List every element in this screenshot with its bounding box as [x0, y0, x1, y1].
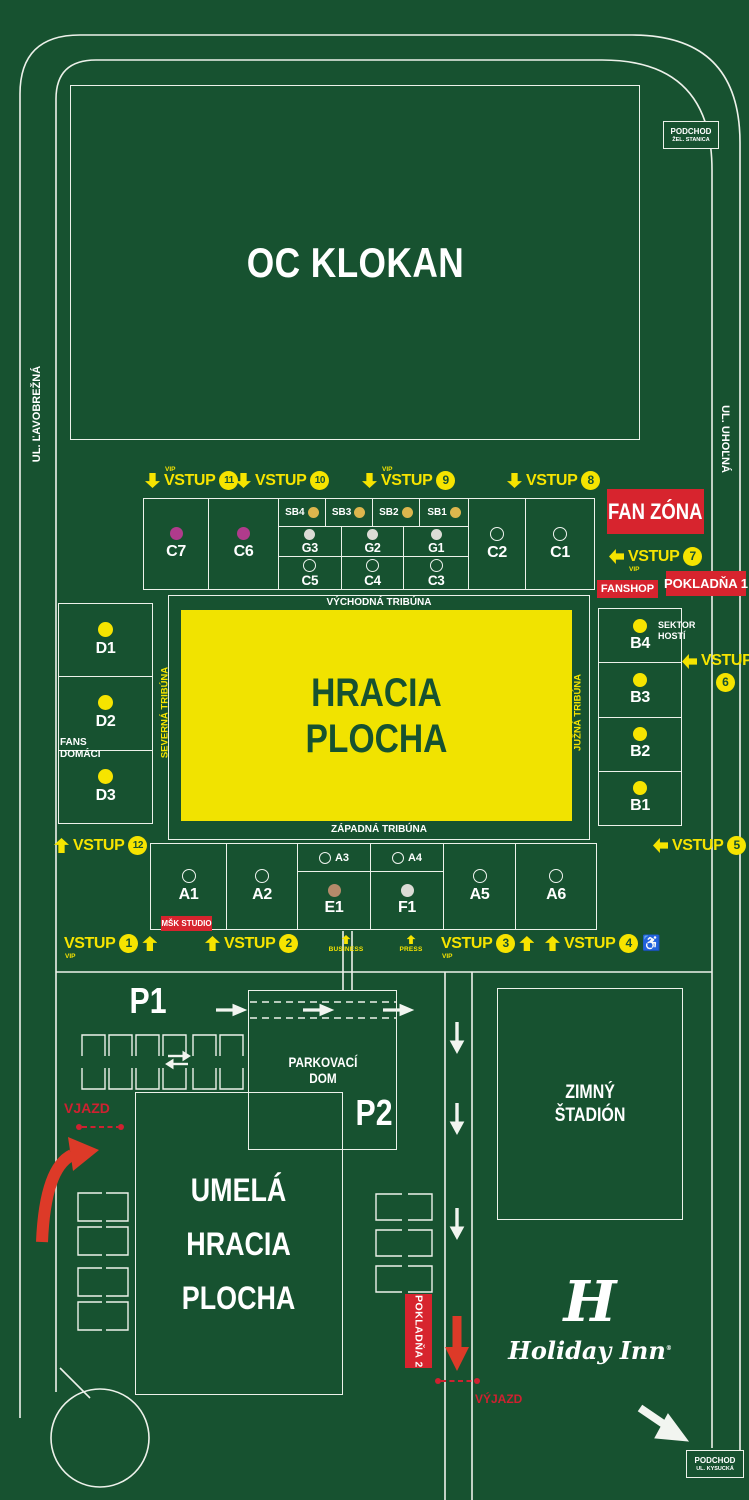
- entrance-label: VSTUP: [224, 935, 275, 952]
- sector-label: A5: [470, 886, 490, 904]
- vip-label: VIP: [65, 953, 75, 960]
- sector-dot-a6: [549, 869, 563, 883]
- east-mid-block: SB4 SB3 SB2 SB1 G3 C5 G2 C4 G1 C3: [279, 499, 469, 589]
- west-stand: A1 A2 A3 A4 E1 F1 A5 A6: [150, 843, 597, 930]
- down-arrow-icon: [451, 1041, 464, 1053]
- entrance-5: VSTUP 5: [653, 836, 746, 855]
- sector-dot-b1: [633, 781, 647, 795]
- west-mid-block: A3 A4 E1 F1: [298, 844, 444, 929]
- ice-stadium: ZIMNÝŠTADIÓN: [497, 988, 683, 1220]
- sign-title: PODCHOD: [671, 127, 712, 136]
- down-arrow-icon: [451, 1227, 464, 1239]
- entrance-1: VIPVSTUP 1: [64, 934, 157, 953]
- right-arrow-icon: [233, 1005, 246, 1016]
- sector-a6: A6: [516, 844, 596, 929]
- entrance-label: VSTUP: [526, 472, 577, 489]
- vip-label: VIP: [382, 466, 392, 473]
- entrance-number: 8: [581, 471, 600, 490]
- down-arrow-icon: [451, 1122, 464, 1134]
- sector-label: SB3: [332, 507, 351, 518]
- left-arrow-icon: [653, 838, 668, 853]
- holiday-inn-monogram: H: [505, 1272, 675, 1332]
- sector-c5: C5: [279, 557, 341, 589]
- street-label-right: UL. UHOĽNÁ: [719, 384, 731, 494]
- building-label: PARKOVACÍDOM: [288, 1054, 357, 1086]
- entrance-10: VSTUP 10: [236, 471, 329, 490]
- sector-a5: A5: [444, 844, 516, 929]
- building-label: UMELÁHRACIAPLOCHA: [182, 1163, 295, 1325]
- sector-dot-sb2: [402, 507, 413, 518]
- left-arrow-icon: [682, 654, 697, 669]
- sector-c1: C1: [526, 499, 594, 589]
- parking-p2-label: P2: [352, 1092, 396, 1134]
- building-label: OC KLOKAN: [246, 239, 463, 287]
- entrance-label: PRESS: [399, 946, 422, 953]
- down-arrow-icon: [362, 473, 377, 488]
- sector-a4: A4: [371, 844, 443, 871]
- up-arrow-icon: [142, 936, 157, 951]
- vip-label: VIP: [165, 466, 175, 473]
- sign-subtitle: UL. KYSUCKÁ: [696, 1466, 734, 1472]
- two-way-arrow-icon: [166, 1060, 173, 1069]
- right-arrow-icon: [400, 1005, 413, 1016]
- sector-label: A1: [179, 886, 199, 904]
- sector-label: B4: [630, 635, 650, 653]
- sector-b1: B1: [599, 771, 681, 825]
- underpass-sign-station: PODCHOD ŽEL. STANICA: [663, 121, 719, 149]
- entrance-number: 12: [128, 836, 147, 855]
- holiday-inn-logo: H Holiday Inn®: [505, 1272, 675, 1365]
- sector-label: B1: [630, 797, 650, 815]
- sector-dot-d3: [98, 769, 113, 784]
- sector-g2: G2: [342, 527, 404, 557]
- sector-a3: A3: [298, 844, 371, 871]
- sector-dot-e1: [328, 884, 341, 897]
- entrance-label: VSTUP: [64, 935, 115, 952]
- sector-sb4: SB4: [279, 499, 326, 526]
- sector-e1: E1: [298, 872, 371, 929]
- entrance-label: VSTUP: [628, 548, 679, 565]
- gc-col-2: G2 C4: [342, 527, 405, 589]
- sector-dot-c5: [303, 559, 316, 572]
- sector-dot-c1: [553, 527, 567, 541]
- up-arrow-icon: [342, 935, 351, 944]
- exit-arrow-head: [445, 1347, 469, 1371]
- entrance-6: VSTUP 6: [682, 652, 749, 692]
- sector-label: SB2: [379, 507, 398, 518]
- down-arrow-icon: [507, 473, 522, 488]
- up-arrow-icon: [519, 936, 534, 951]
- entrance-12: VSTUP 12: [54, 836, 147, 855]
- stadium-map: UL. ĽAVOBREŽNÁ UL. UHOĽNÁ PODCHOD ŽEL. S…: [0, 0, 749, 1500]
- home-fans-label: FANSDOMÁCI: [60, 737, 101, 761]
- entrance-number: 10: [310, 471, 329, 490]
- sb-row: SB4 SB3 SB2 SB1: [279, 499, 468, 527]
- sector-dot-g1: [431, 529, 442, 540]
- sector-label: D3: [96, 787, 116, 805]
- entrance-number: 2: [279, 934, 298, 953]
- sector-label: D2: [96, 713, 116, 731]
- artificial-pitch: UMELÁHRACIAPLOCHA: [135, 1092, 343, 1395]
- gc-col-3: G3 C5: [279, 527, 342, 589]
- sector-dot-d1: [98, 622, 113, 637]
- entrance-label: VSTUP: [164, 472, 215, 489]
- sector-c6: C6: [209, 499, 279, 589]
- entrance-label: VSTUP: [672, 837, 723, 854]
- sector-dot-d2: [98, 695, 113, 710]
- sector-dot-g2: [367, 529, 378, 540]
- sign-label: POKLADŇA 1: [664, 576, 748, 591]
- press-entrance: PRESS: [392, 935, 430, 953]
- sector-f1: F1: [371, 872, 443, 929]
- sign-label: MŠK STUDIO: [161, 919, 211, 928]
- sector-label: SB4: [285, 507, 304, 518]
- holiday-inn-name: Holiday Inn®: [505, 1336, 675, 1365]
- up-arrow-icon: [545, 936, 560, 951]
- street-label-left: UL. ĽAVOBREŽNÁ: [31, 359, 43, 469]
- ticket-office-2-sign: POKLADŇA 2: [405, 1294, 432, 1368]
- sector-label: C6: [234, 543, 254, 561]
- sector-label: C1: [550, 544, 570, 562]
- registered-mark: ®: [666, 1345, 672, 1352]
- entrance-number: 1: [119, 934, 138, 953]
- pitch: HRACIAPLOCHA: [181, 610, 572, 821]
- sector-dot-a1: [182, 869, 196, 883]
- fanshop-sign: FANSHOP: [597, 580, 658, 598]
- sector-label: F1: [398, 899, 416, 917]
- sector-dot-f1: [401, 884, 414, 897]
- sign-label: FAN ZÓNA: [608, 499, 702, 525]
- sector-label: D1: [96, 640, 116, 658]
- up-arrow-icon: [54, 838, 69, 853]
- e1-f1-row: E1 F1: [298, 872, 443, 929]
- sign-subtitle: ŽEL. STANICA: [672, 137, 709, 143]
- down-arrow-icon: [145, 473, 160, 488]
- a3-a4-row: A3 A4: [298, 844, 443, 872]
- oc-klokan-building: OC KLOKAN: [70, 85, 640, 440]
- tribune-label-north: SEVERNÁ TRIBÚNA: [160, 658, 171, 768]
- entrance-number: 9: [436, 471, 455, 490]
- sector-dot-g3: [304, 529, 315, 540]
- msk-studio-sign: MŠK STUDIO: [161, 916, 212, 931]
- entrance-8: VSTUP 8: [507, 471, 600, 490]
- sign-label: POKLADŇA 2: [413, 1295, 425, 1368]
- fan-zone-sign: FAN ZÓNA: [607, 489, 704, 534]
- sector-b2: B2: [599, 717, 681, 771]
- sector-label: G1: [428, 541, 444, 555]
- vip-label: VIP: [442, 953, 452, 960]
- sector-label: B3: [630, 689, 650, 707]
- sector-dot-sb4: [308, 507, 319, 518]
- sector-label: C4: [364, 573, 381, 588]
- sector-label: A2: [252, 886, 272, 904]
- sector-dot-a3: [319, 852, 331, 864]
- gc-col-1: G1 C3: [404, 527, 468, 589]
- entrance-9: VIPVSTUP 9: [362, 471, 455, 490]
- sector-label: G2: [364, 541, 380, 555]
- sector-dot-sb1: [450, 507, 461, 518]
- tribune-label-south: JUŽNÁ TRIBÚNA: [573, 658, 584, 768]
- business-entrance: BUSINESS: [327, 935, 365, 953]
- wheelchair-icon: ♿: [642, 936, 660, 951]
- entrance-label: VSTUP: [381, 472, 432, 489]
- up-arrow-icon: [205, 936, 220, 951]
- sector-label: A4: [408, 852, 422, 864]
- sector-dot-c6: [237, 527, 250, 540]
- sector-d1: D1: [59, 604, 152, 676]
- north-stand: D1 D2 D3: [58, 603, 153, 824]
- sector-dot-a4: [392, 852, 404, 864]
- parking-p1-label: P1: [126, 980, 170, 1022]
- entrance-number: 3: [496, 934, 515, 953]
- sign-title: PODCHOD: [695, 1456, 736, 1465]
- sector-label: SB1: [427, 507, 446, 518]
- entrance-7: VIPVSTUP 7: [609, 547, 702, 566]
- away-sector-label: SEKTORHOSTÍ: [658, 620, 695, 642]
- entrance-label: VSTUP: [701, 652, 749, 669]
- sector-a2: A2: [227, 844, 298, 929]
- entrance-11: VIPVSTUP 11: [145, 471, 238, 490]
- sector-label: A6: [546, 886, 566, 904]
- pitch-band: HRACIAPLOCHA: [168, 595, 590, 840]
- entrance-number: 6: [716, 673, 735, 692]
- sector-sb1: SB1: [420, 499, 468, 526]
- entrance-label: VSTUP: [255, 472, 306, 489]
- entrance-label: VSTUP: [73, 837, 124, 854]
- entrance-label: VSTUP: [564, 935, 615, 952]
- roundabout: [51, 1389, 149, 1487]
- sector-label: C7: [166, 543, 186, 561]
- ticket-office-1-sign: POKLADŇA 1: [666, 571, 746, 596]
- entrance-label: BUSINESS: [329, 946, 364, 953]
- entrance-number: 7: [683, 547, 702, 566]
- sector-c7: C7: [144, 499, 209, 589]
- entrance-4: VSTUP 4 ♿: [545, 934, 661, 953]
- sector-g3: G3: [279, 527, 341, 557]
- east-stand: C7 C6 SB4 SB3 SB2 SB1 G3 C5 G2 C4: [143, 498, 595, 590]
- exit-label: VÝJAZD: [475, 1392, 522, 1406]
- sector-dot-a5: [473, 869, 487, 883]
- down-arrow-icon: [236, 473, 251, 488]
- sign-label: FANSHOP: [601, 583, 654, 595]
- up-arrow-icon: [407, 935, 416, 944]
- sector-b3: B3: [599, 662, 681, 716]
- sector-c4: C4: [342, 557, 404, 589]
- sector-label: B2: [630, 743, 650, 761]
- vip-label: VIP: [629, 566, 639, 573]
- gc-rows: G3 C5 G2 C4 G1 C3: [279, 527, 468, 589]
- sector-sb3: SB3: [326, 499, 373, 526]
- sector-c3: C3: [404, 557, 468, 589]
- sector-label: A3: [335, 852, 349, 864]
- sector-dot-b4: [633, 619, 647, 633]
- entry-arrow-icon: [42, 1155, 72, 1242]
- entrance-3: VIPVSTUP 3: [441, 934, 534, 953]
- entrance-2: VSTUP 2: [205, 934, 298, 953]
- sector-sb2: SB2: [373, 499, 421, 526]
- entrance-label: VSTUP: [441, 935, 492, 952]
- sector-dot-c4: [366, 559, 379, 572]
- entry-label: VJAZD: [64, 1100, 110, 1116]
- entrance-number: 4: [619, 934, 638, 953]
- sector-label: E1: [325, 899, 344, 917]
- building-label: ZIMNÝŠTADIÓN: [555, 1081, 626, 1127]
- entrance-number: 5: [727, 836, 746, 855]
- entry-arrow-head: [68, 1137, 99, 1171]
- sector-label: C2: [487, 544, 507, 562]
- sector-dot-sb3: [354, 507, 365, 518]
- sector-dot-b2: [633, 727, 647, 741]
- left-arrow-icon: [609, 549, 624, 564]
- tribune-label-west: ZÁPADNÁ TRIBÚNA: [168, 824, 590, 835]
- sector-dot-b3: [633, 673, 647, 687]
- sector-dot-c2: [490, 527, 504, 541]
- underpass-sign-kysucka: PODCHOD UL. KYSUCKÁ: [686, 1450, 744, 1478]
- sector-g1: G1: [404, 527, 468, 557]
- sector-label: C5: [302, 573, 319, 588]
- sector-c2: C2: [469, 499, 526, 589]
- sector-dot-a2: [255, 869, 269, 883]
- sector-dot-c7: [170, 527, 183, 540]
- tribune-label-east: VÝCHODNÁ TRIBÚNA: [168, 597, 590, 608]
- sector-label: G3: [302, 541, 318, 555]
- pitch-label: HRACIAPLOCHA: [306, 670, 448, 762]
- sector-dot-c3: [430, 559, 443, 572]
- road-connector: [60, 1368, 90, 1398]
- sector-label: C3: [428, 573, 445, 588]
